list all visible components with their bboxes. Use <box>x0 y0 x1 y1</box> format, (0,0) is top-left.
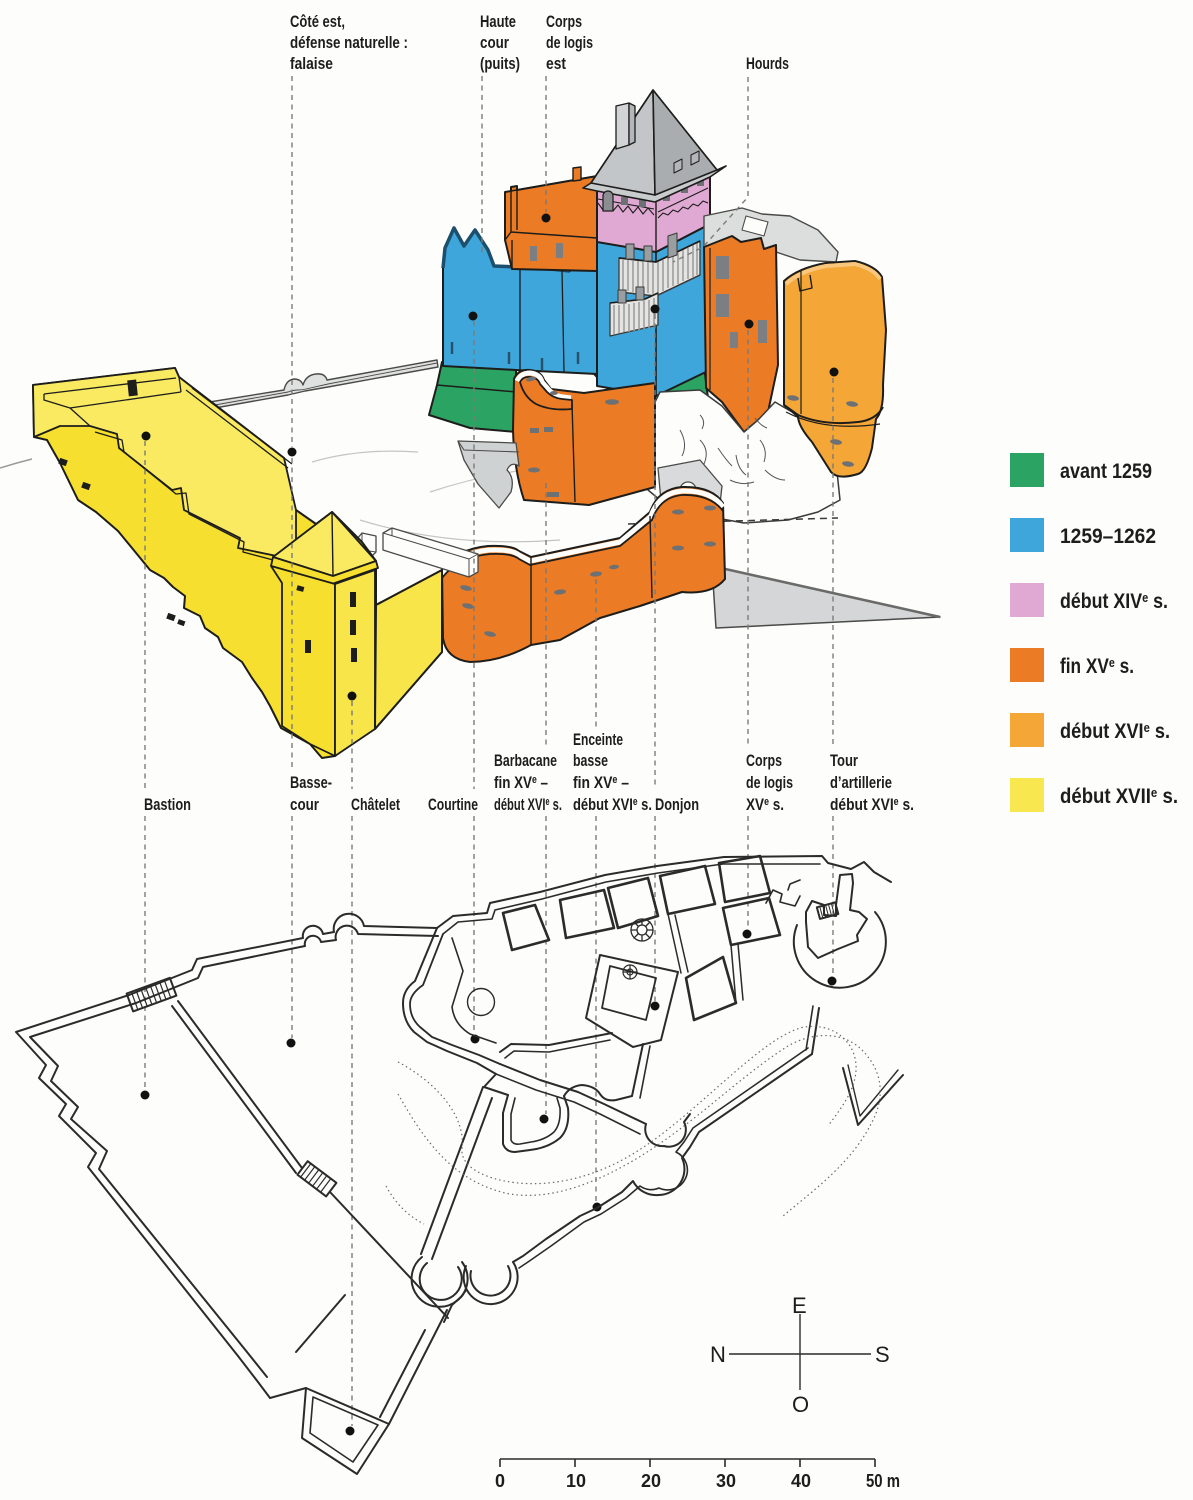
svg-text:Corps: Corps <box>746 751 782 770</box>
svg-text:Donjon: Donjon <box>655 795 699 814</box>
svg-text:Enceinte: Enceinte <box>573 730 623 749</box>
svg-text:cour: cour <box>290 795 319 814</box>
svg-text:falaise: falaise <box>290 54 333 73</box>
svg-text:fin XVe s.: fin XVe s. <box>1060 655 1134 678</box>
svg-text:Corps: Corps <box>546 12 582 31</box>
svg-text:défense naturelle :: défense naturelle : <box>290 33 408 52</box>
svg-text:XVe s.: XVe s. <box>746 795 784 814</box>
svg-text:d’artillerie: d’artillerie <box>830 773 892 792</box>
svg-text:S: S <box>875 1342 890 1367</box>
svg-text:avant 1259: avant 1259 <box>1060 460 1152 483</box>
svg-text:début XIVe s.: début XIVe s. <box>1060 590 1168 613</box>
svg-text:(puits): (puits) <box>480 54 520 73</box>
svg-text:Haute: Haute <box>480 12 516 31</box>
svg-text:E: E <box>792 1293 807 1318</box>
svg-text:Tour: Tour <box>830 751 858 770</box>
svg-text:Basse-: Basse- <box>290 773 332 792</box>
svg-text:est: est <box>546 54 566 73</box>
svg-text:10: 10 <box>566 1471 586 1491</box>
svg-text:cour: cour <box>480 33 509 52</box>
svg-text:début XVIIe s.: début XVIIe s. <box>1060 785 1178 808</box>
svg-text:1259–1262: 1259–1262 <box>1060 525 1156 548</box>
svg-text:Châtelet: Châtelet <box>351 795 400 814</box>
svg-text:0: 0 <box>495 1471 505 1491</box>
svg-text:Courtine: Courtine <box>428 795 478 814</box>
svg-text:N: N <box>710 1342 726 1367</box>
svg-text:début XVIe s.: début XVIe s. <box>1060 720 1170 743</box>
svg-text:Hourds: Hourds <box>746 54 789 73</box>
svg-text:basse: basse <box>573 751 608 770</box>
svg-text:Bastion: Bastion <box>144 795 191 814</box>
svg-text:Côté est,: Côté est, <box>290 12 345 31</box>
svg-text:40: 40 <box>791 1471 811 1491</box>
svg-text:début XVIe s.: début XVIe s. <box>830 795 914 814</box>
svg-text:Barbacane: Barbacane <box>494 751 557 770</box>
svg-text:20: 20 <box>641 1471 661 1491</box>
svg-text:fin XVe –: fin XVe – <box>494 773 548 792</box>
svg-text:O: O <box>792 1392 809 1417</box>
svg-text:de logis: de logis <box>746 773 793 792</box>
svg-text:30: 30 <box>716 1471 736 1491</box>
svg-text:fin XVe –: fin XVe – <box>573 773 629 792</box>
svg-text:début XVIe s.: début XVIe s. <box>494 795 562 814</box>
svg-text:50 m: 50 m <box>866 1471 900 1491</box>
svg-text:début XVIe s.: début XVIe s. <box>573 795 652 814</box>
svg-text:de logis: de logis <box>546 33 593 52</box>
